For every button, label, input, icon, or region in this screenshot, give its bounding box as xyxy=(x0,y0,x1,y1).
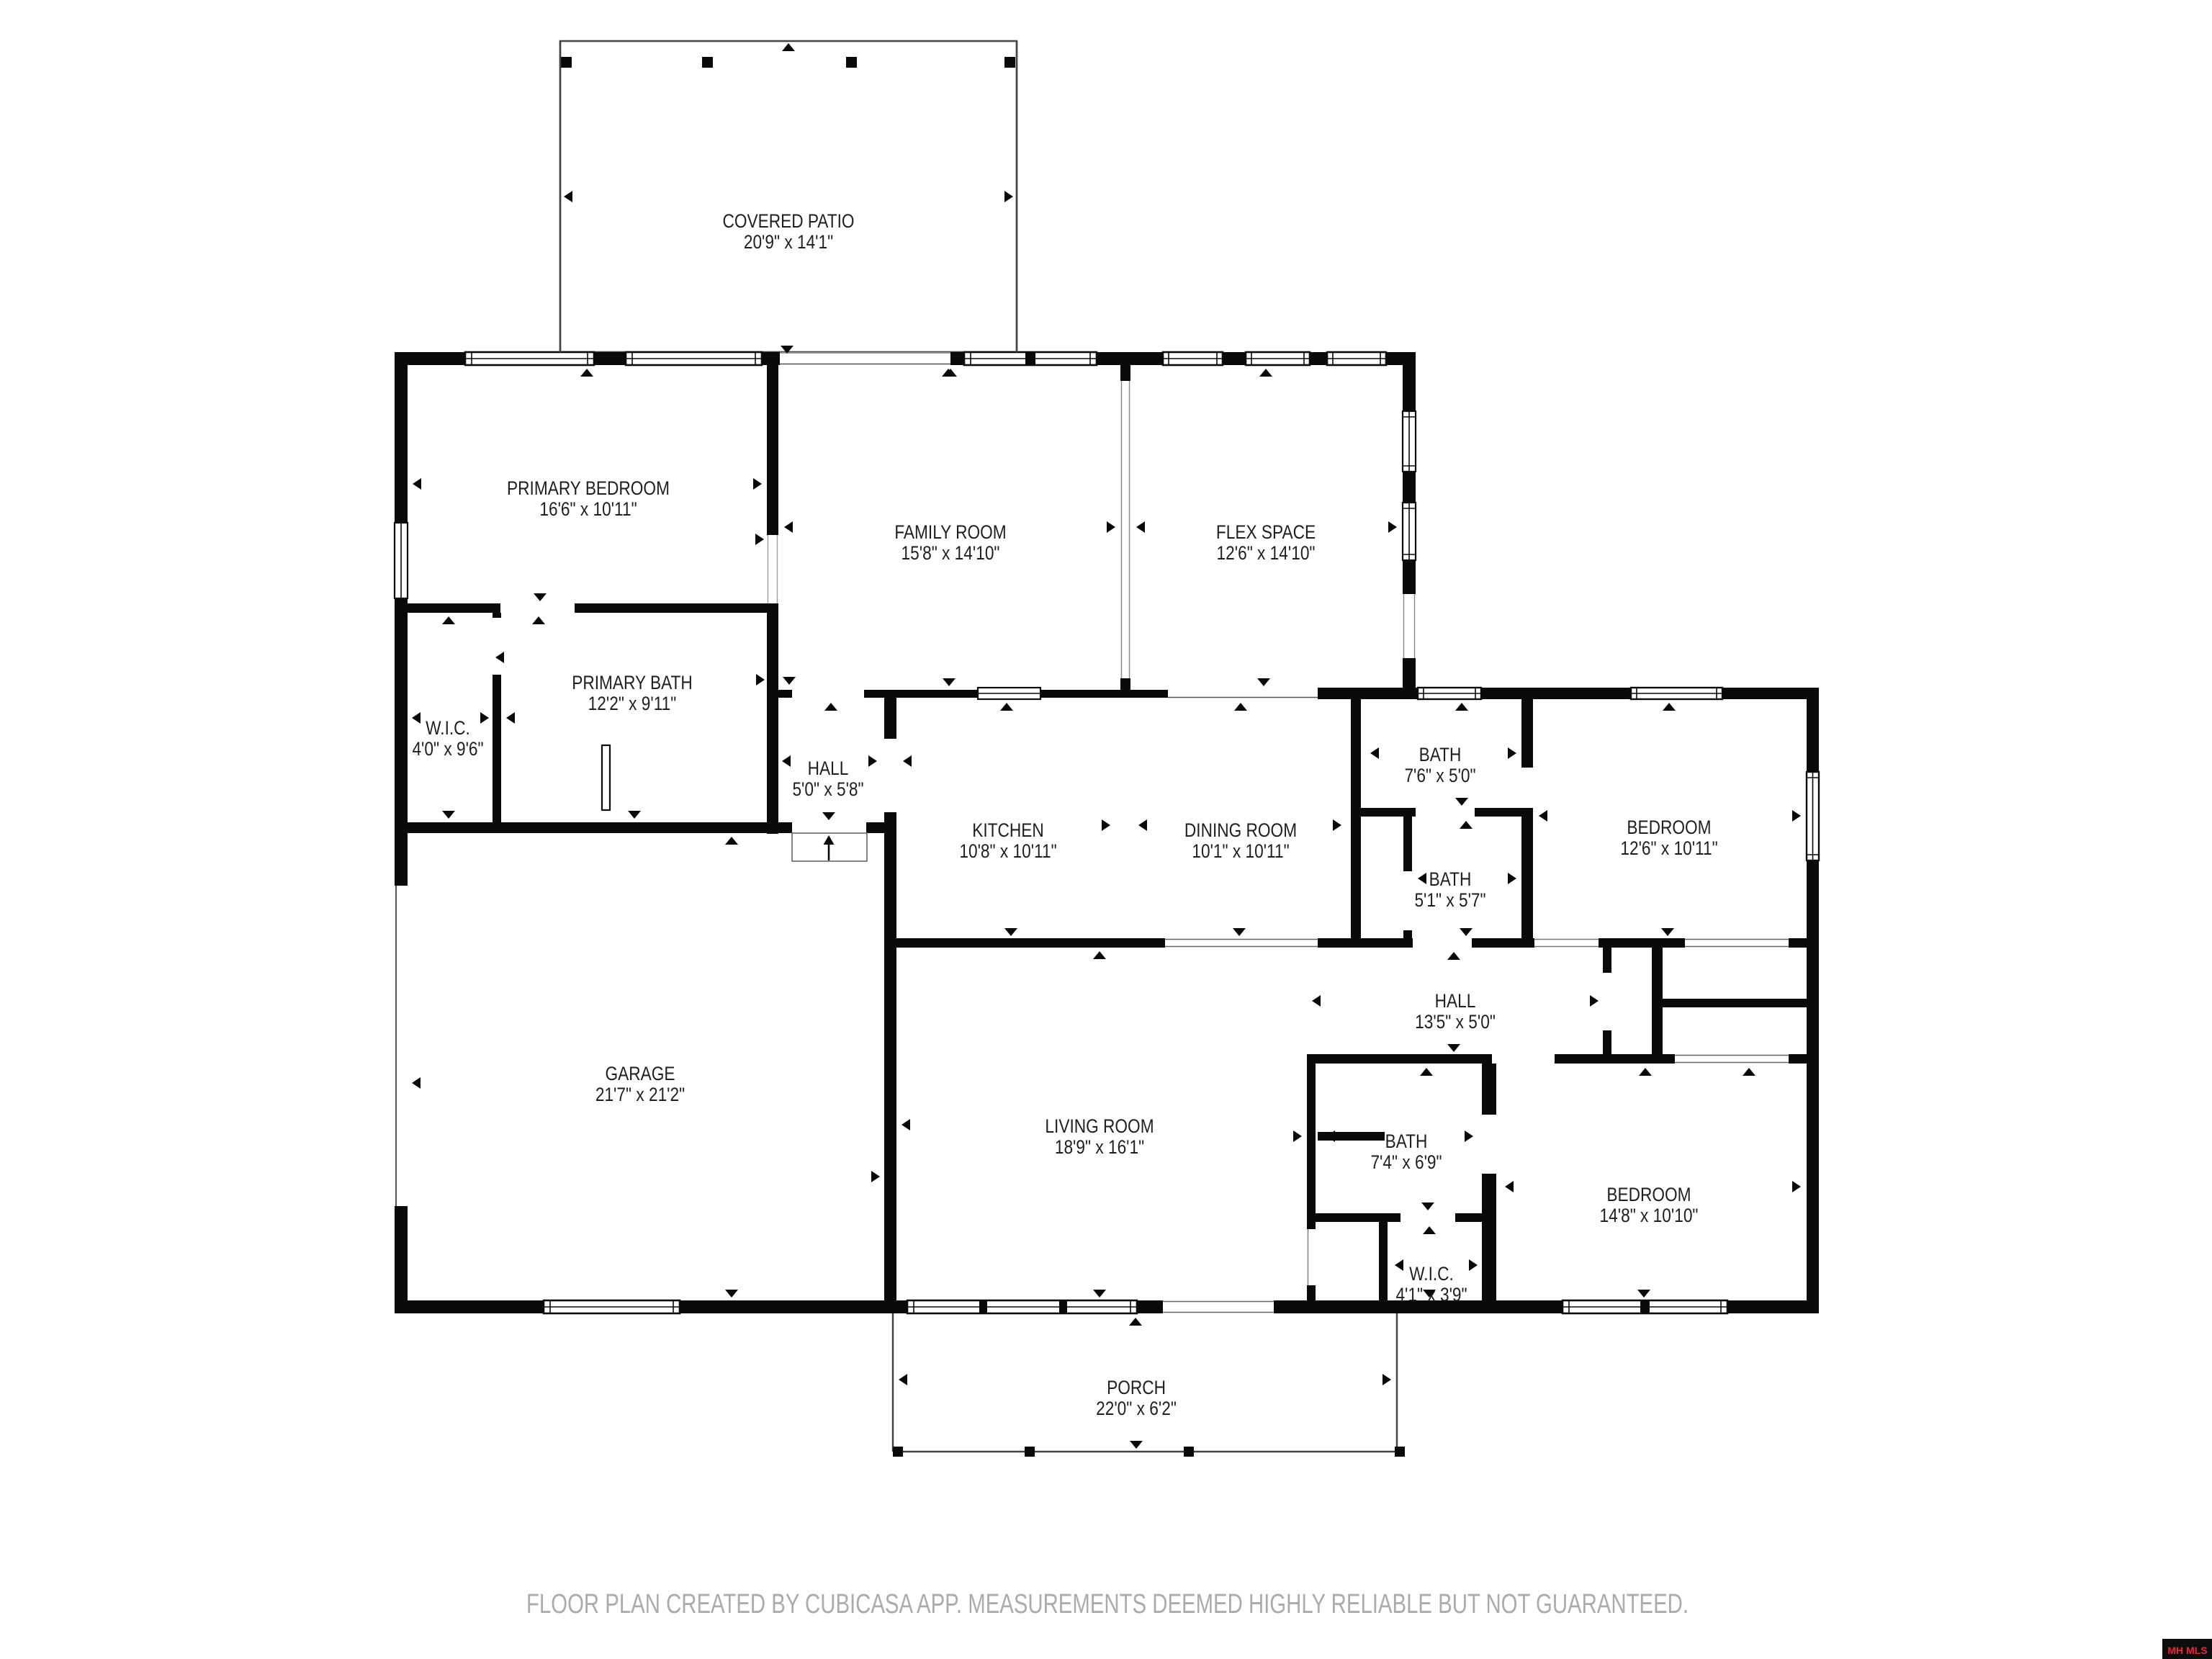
svg-text:BATH: BATH xyxy=(1385,1130,1428,1152)
svg-text:16'6" x 10'11": 16'6" x 10'11" xyxy=(539,498,637,520)
svg-text:DINING ROOM: DINING ROOM xyxy=(1184,819,1297,841)
svg-text:FLOOR PLAN CREATED BY CUBICASA: FLOOR PLAN CREATED BY CUBICASA APP. MEAS… xyxy=(526,1589,1689,1619)
svg-text:13'5" x 5'0": 13'5" x 5'0" xyxy=(1415,1011,1496,1033)
svg-text:FLEX SPACE: FLEX SPACE xyxy=(1216,521,1316,543)
svg-text:12'2" x 9'11": 12'2" x 9'11" xyxy=(588,693,677,714)
svg-text:HALL: HALL xyxy=(808,757,849,779)
svg-text:18'9" x 16'1": 18'9" x 16'1" xyxy=(1055,1136,1144,1158)
svg-text:KITCHEN: KITCHEN xyxy=(972,819,1044,841)
svg-text:14'8" x 10'10": 14'8" x 10'10" xyxy=(1600,1205,1699,1226)
svg-text:MH MLS: MH MLS xyxy=(2167,1645,2207,1656)
svg-text:5'0" x 5'8": 5'0" x 5'8" xyxy=(792,778,863,800)
svg-text:20'9" x 14'1": 20'9" x 14'1" xyxy=(744,231,833,253)
svg-text:12'6" x 14'10": 12'6" x 14'10" xyxy=(1217,542,1316,564)
svg-text:5'1" x 5'7": 5'1" x 5'7" xyxy=(1414,889,1485,911)
svg-text:BATH: BATH xyxy=(1419,744,1462,765)
svg-text:BEDROOM: BEDROOM xyxy=(1606,1184,1691,1205)
svg-text:W.I.C.: W.I.C. xyxy=(426,717,470,739)
svg-text:GARAGE: GARAGE xyxy=(605,1063,675,1084)
svg-text:FAMILY ROOM: FAMILY ROOM xyxy=(894,521,1006,543)
svg-text:7'6" x 5'0": 7'6" x 5'0" xyxy=(1404,765,1475,786)
svg-text:7'4" x 6'9": 7'4" x 6'9" xyxy=(1370,1151,1442,1173)
svg-text:22'0" x 6'2": 22'0" x 6'2" xyxy=(1096,1398,1177,1419)
svg-text:4'0" x 9'6": 4'0" x 9'6" xyxy=(412,738,483,760)
svg-text:BATH: BATH xyxy=(1429,868,1472,890)
svg-text:15'8" x 14'10": 15'8" x 14'10" xyxy=(902,542,1000,564)
svg-text:10'1" x 10'11": 10'1" x 10'11" xyxy=(1192,840,1289,862)
svg-text:4'1" x 3'9": 4'1" x 3'9" xyxy=(1395,1284,1467,1305)
svg-text:W.I.C.: W.I.C. xyxy=(1409,1263,1454,1285)
svg-text:12'6" x 10'11": 12'6" x 10'11" xyxy=(1620,837,1717,859)
svg-text:10'8" x 10'11": 10'8" x 10'11" xyxy=(959,840,1056,862)
svg-text:PORCH: PORCH xyxy=(1107,1377,1166,1398)
svg-text:COVERED PATIO: COVERED PATIO xyxy=(722,210,854,232)
svg-text:21'7" x 21'2": 21'7" x 21'2" xyxy=(595,1084,685,1105)
svg-text:LIVING ROOM: LIVING ROOM xyxy=(1045,1115,1154,1137)
svg-text:PRIMARY BATH: PRIMARY BATH xyxy=(572,672,693,693)
svg-text:PRIMARY BEDROOM: PRIMARY BEDROOM xyxy=(507,477,670,499)
svg-text:BEDROOM: BEDROOM xyxy=(1627,817,1711,838)
svg-text:HALL: HALL xyxy=(1435,990,1476,1012)
